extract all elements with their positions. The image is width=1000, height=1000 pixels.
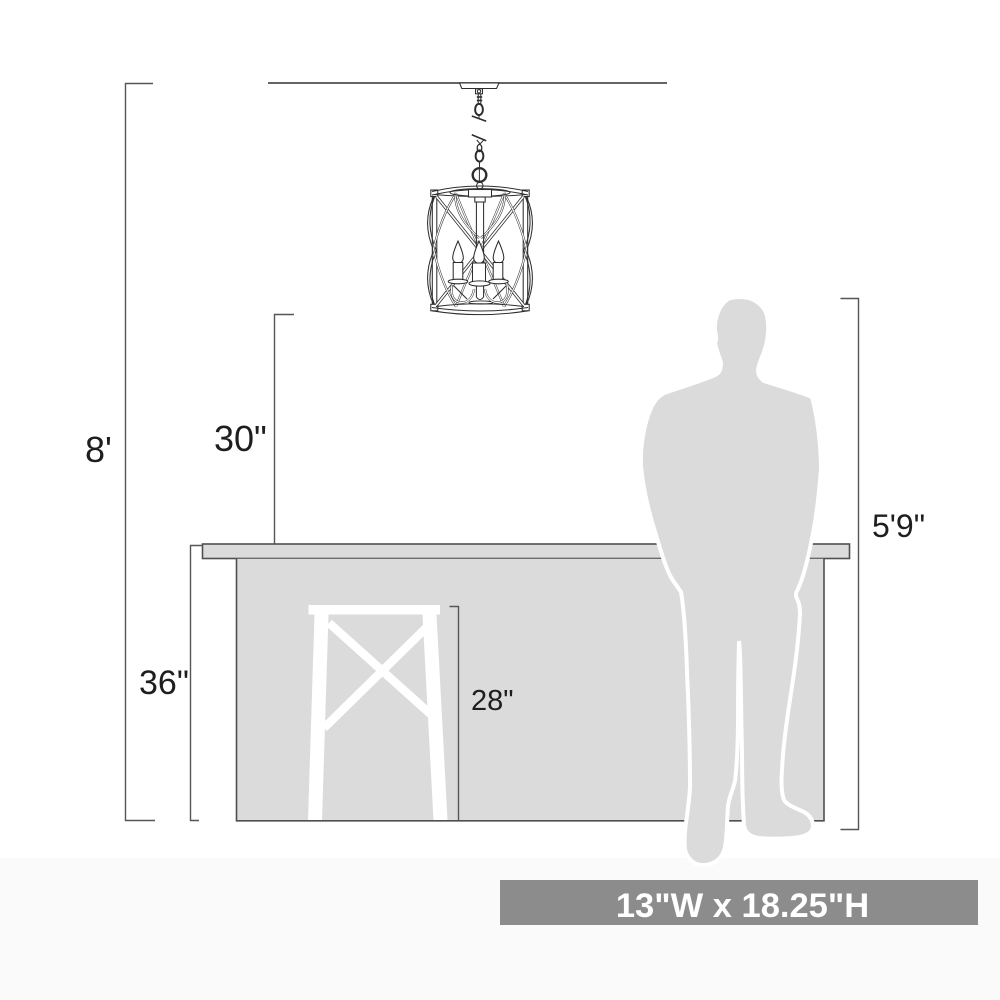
svg-text:30": 30" (214, 418, 267, 459)
svg-text:8': 8' (85, 429, 112, 470)
svg-text:13"W x 18.25"H: 13"W x 18.25"H (616, 887, 869, 925)
svg-text:5'9": 5'9" (872, 508, 925, 544)
svg-text:36": 36" (139, 664, 189, 702)
svg-text:28": 28" (471, 685, 514, 717)
